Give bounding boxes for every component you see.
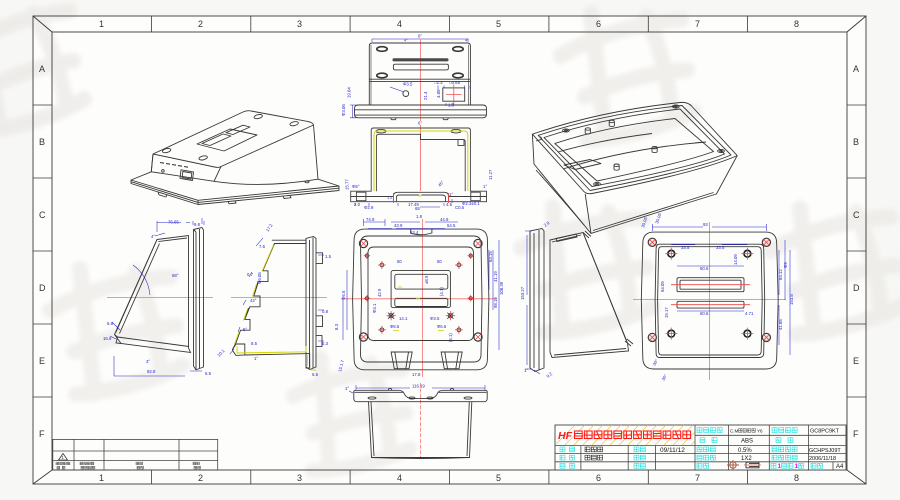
svg-text:Φ9: Φ9	[783, 262, 788, 268]
svg-text:1: 1	[778, 463, 782, 470]
svg-text:64.09: 64.09	[660, 281, 665, 292]
svg-text:Ф6.5: Ф6.5	[437, 324, 447, 329]
svg-text:74.9: 74.9	[366, 217, 375, 222]
svg-text:1°: 1°	[254, 356, 258, 361]
svg-text:1.2: 1.2	[387, 196, 392, 200]
svg-text:A: A	[853, 64, 859, 74]
svg-text:65: 65	[415, 206, 420, 211]
svg-text:2006/11/18: 2006/11/18	[809, 456, 836, 462]
svg-text:Φ3.5: Φ3.5	[430, 316, 440, 321]
svg-text:4°: 4°	[404, 38, 408, 43]
svg-text:7: 7	[695, 19, 700, 29]
svg-text:6°: 6°	[418, 34, 422, 39]
svg-text:15.77: 15.77	[345, 179, 350, 190]
svg-text:5: 5	[496, 19, 501, 29]
svg-text:7: 7	[695, 473, 700, 483]
svg-text:33.5: 33.5	[681, 245, 690, 250]
svg-text:43.9: 43.9	[394, 223, 403, 228]
svg-text:(4.1): (4.1)	[448, 333, 453, 342]
svg-text:4: 4	[397, 19, 402, 29]
svg-text:19.17: 19.17	[664, 307, 669, 318]
svg-text:Φ6.5: Φ6.5	[341, 290, 346, 300]
svg-text:19.04: 19.04	[347, 87, 352, 98]
svg-text:4: 4	[397, 473, 402, 483]
svg-text:□2.3: □2.3	[434, 80, 443, 85]
svg-text:C.M: C.M	[730, 429, 739, 434]
svg-text:(4.1): (4.1)	[439, 287, 444, 296]
svg-text:Φ4.1: Φ4.1	[372, 303, 377, 313]
svg-text:50: 50	[437, 259, 442, 264]
svg-text:Φ3.5: Φ3.5	[403, 82, 413, 87]
svg-text:108.39: 108.39	[499, 281, 504, 295]
svg-text:68°: 68°	[172, 273, 179, 278]
svg-text:B: B	[853, 137, 859, 147]
svg-text:6.5: 6.5	[312, 372, 319, 377]
svg-text:D: D	[853, 283, 860, 293]
svg-text:1.8: 1.8	[448, 103, 455, 108]
svg-text:6.5: 6.5	[205, 371, 212, 376]
svg-text:4.5: 4.5	[446, 202, 453, 207]
svg-text:5°: 5°	[243, 327, 247, 332]
svg-text:Y6: Y6	[757, 429, 763, 434]
svg-text:98.19: 98.19	[493, 297, 498, 308]
svg-text:1: 1	[99, 473, 104, 483]
svg-text:54.5: 54.5	[447, 223, 456, 228]
svg-text:63.4: 63.4	[410, 230, 419, 235]
svg-text:50: 50	[397, 259, 402, 264]
svg-text:6: 6	[596, 19, 601, 29]
svg-text:4.71: 4.71	[745, 311, 754, 316]
svg-text:7.6: 7.6	[259, 244, 266, 249]
svg-text:153.27: 153.27	[520, 286, 525, 300]
svg-text:E: E	[39, 356, 45, 366]
svg-text:Ф8.5: Ф8.5	[390, 324, 400, 329]
svg-text:Φ5°: Φ5°	[352, 184, 360, 189]
svg-text:6°: 6°	[418, 121, 422, 126]
svg-text:4°: 4°	[151, 234, 155, 239]
svg-text:4.85: 4.85	[436, 89, 441, 98]
svg-text:76.65: 76.65	[168, 220, 179, 225]
svg-text:41.19: 41.19	[493, 271, 498, 282]
svg-text:42°: 42°	[250, 298, 257, 303]
svg-text:F: F	[39, 429, 45, 439]
svg-text:C: C	[39, 210, 46, 220]
svg-text:Φ3.06: Φ3.06	[341, 104, 346, 116]
svg-text:3°: 3°	[146, 359, 150, 364]
svg-text:116.19: 116.19	[412, 383, 425, 388]
svg-text:B: B	[39, 137, 45, 147]
svg-text:GC8PC9KT: GC8PC9KT	[810, 429, 840, 435]
svg-text:16.9: 16.9	[103, 336, 112, 341]
svg-text:1°: 1°	[449, 192, 453, 197]
svg-text:42.9: 42.9	[377, 288, 382, 297]
svg-text:60.6: 60.6	[700, 266, 709, 271]
svg-text:HF: HF	[558, 430, 573, 442]
svg-text:1: 1	[99, 19, 104, 29]
svg-text:1.8: 1.8	[416, 214, 423, 219]
svg-text:0.5%: 0.5%	[738, 448, 752, 454]
svg-text:3: 3	[297, 19, 302, 29]
svg-text:92.8: 92.8	[147, 369, 156, 374]
svg-text:5: 5	[496, 473, 501, 483]
svg-text:5.3: 5.3	[322, 341, 329, 346]
svg-text:6: 6	[596, 473, 601, 483]
svg-text:2: 2	[198, 19, 203, 29]
svg-text:1°: 1°	[483, 184, 487, 189]
svg-text:□0.65: □0.65	[449, 80, 461, 85]
svg-text:1°: 1°	[345, 386, 349, 391]
svg-text:1.5: 1.5	[325, 254, 332, 259]
svg-text:A4: A4	[836, 464, 844, 470]
svg-text:F: F	[853, 429, 859, 439]
svg-text:8.5: 8.5	[251, 341, 258, 346]
svg-text:8: 8	[794, 19, 799, 29]
svg-text:8: 8	[794, 473, 799, 483]
svg-text:44.9: 44.9	[440, 217, 449, 222]
svg-text:D: D	[39, 283, 46, 293]
svg-text:5.8: 5.8	[107, 321, 114, 326]
svg-text:±8.9: ±8.9	[424, 275, 429, 284]
svg-text:09/11/12: 09/11/12	[660, 447, 685, 454]
svg-text:Φ6.05: Φ6.05	[257, 272, 262, 284]
svg-text:60.6: 60.6	[700, 311, 709, 316]
svg-text:11.27: 11.27	[488, 169, 493, 180]
svg-text:2: 2	[198, 473, 203, 483]
svg-text:17.8: 17.8	[412, 372, 421, 377]
svg-text:A: A	[39, 64, 45, 74]
svg-text:3: 3	[297, 473, 302, 483]
svg-text:8.3: 8.3	[334, 323, 339, 330]
svg-text:E: E	[853, 356, 859, 366]
svg-text:9.8: 9.8	[194, 222, 201, 227]
svg-text:14.1: 14.1	[399, 316, 408, 321]
svg-text:Φ2.3±0.1: Φ2.3±0.1	[462, 201, 480, 206]
svg-text:21.4: 21.4	[423, 91, 428, 100]
svg-text:4°: 4°	[465, 38, 469, 43]
svg-text:14.09: 14.09	[733, 254, 738, 265]
svg-text:1: 1	[795, 463, 799, 470]
svg-text:1X2: 1X2	[741, 456, 752, 462]
svg-text:93: 93	[703, 222, 708, 227]
svg-text:33.5: 33.5	[716, 245, 725, 250]
svg-text:C: C	[853, 210, 860, 220]
svg-text:GCHPSJ09T: GCHPSJ09T	[809, 448, 841, 454]
svg-text:ABS: ABS	[741, 439, 753, 445]
